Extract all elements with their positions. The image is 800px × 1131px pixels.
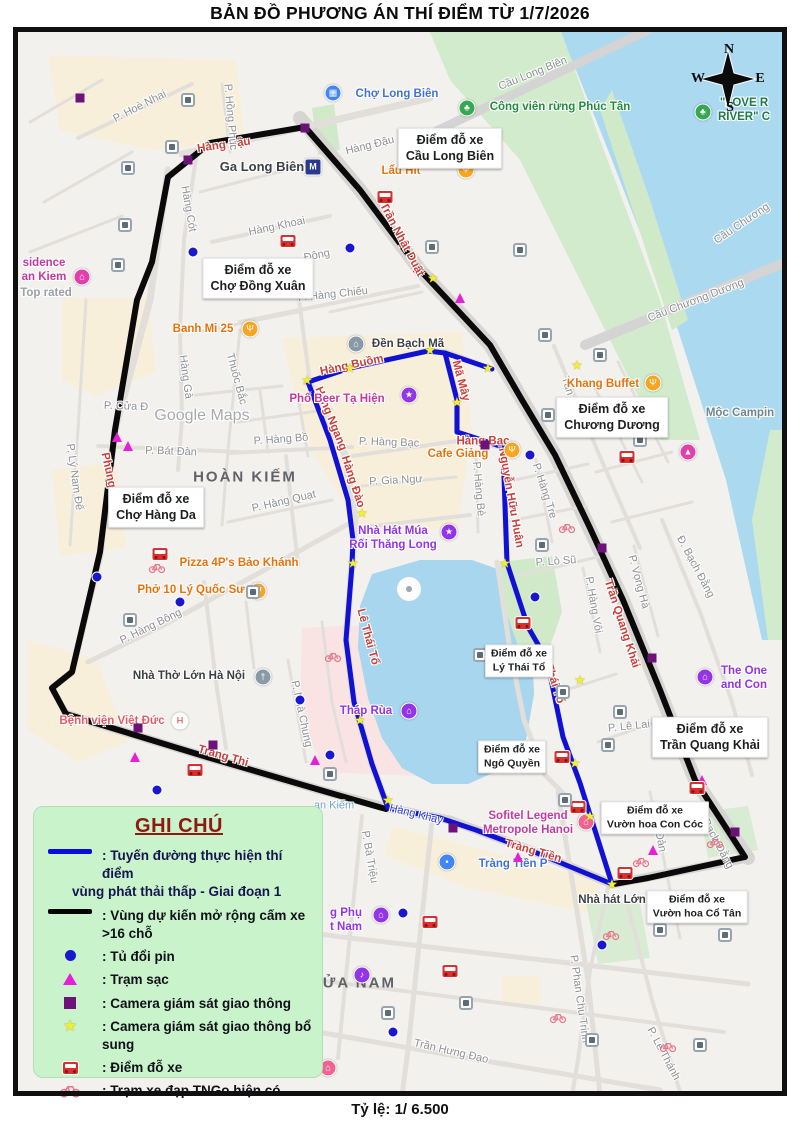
parking-label: Điểm đỗ xe Ngô Quyền	[478, 740, 546, 773]
traffic-camera-marker	[76, 94, 85, 103]
transit-stop-icon	[593, 348, 607, 362]
extra-camera-marker: ★	[482, 362, 494, 375]
legend-item: : Điểm đỗ xe	[46, 1059, 312, 1077]
poi-label: Nhà Hát Múa Rối Thăng Long	[349, 525, 437, 553]
poi-label: Banh Mi 25	[173, 323, 234, 337]
legend-item: : Tuyến đường thực hiện thí điểmvùng phá…	[46, 847, 312, 902]
extra-camera-marker: ★	[344, 362, 356, 375]
extra-camera-marker: ★	[574, 674, 586, 687]
extra-camera-marker: ★	[569, 757, 581, 770]
scale-note: Tỷ lệ: 1/ 6.500	[0, 1101, 800, 1118]
poi-icon: Ψ	[504, 442, 521, 459]
extra-camera-marker: ★	[382, 794, 394, 807]
legend-item: : Trạm xe đạp TNGo hiện có	[46, 1082, 312, 1100]
transit-stop-icon	[121, 161, 135, 175]
tngo-bike-marker	[559, 523, 576, 534]
legend-item: : Camera giám sát giao thông	[46, 995, 312, 1013]
traffic-camera-marker	[731, 828, 740, 837]
battery-swap-marker	[325, 750, 336, 761]
legend-symbol-bus-icon	[46, 1059, 94, 1075]
page-title: BẢN ĐỒ PHƯƠNG ÁN THÍ ĐIỂM TỪ 1/7/2026	[0, 3, 800, 24]
parking-point-marker	[619, 450, 636, 464]
legend-item-label: : Điểm đỗ xe	[102, 1059, 182, 1077]
extra-camera-marker: ★	[451, 396, 463, 409]
traffic-camera-marker	[648, 654, 657, 663]
tngo-bike-marker	[149, 563, 166, 574]
poi-label: Sofitel Legend Metropole Hanoi	[483, 810, 573, 838]
legend-symbol-bike-icon	[46, 1082, 94, 1098]
poi-icon: ★	[441, 524, 458, 541]
poi-label: Phở 10 Lý Quốc Sư	[137, 584, 244, 598]
poi-icon: Ψ	[645, 375, 662, 392]
parking-label: Điểm đỗ xe Chợ Hàng Da	[108, 487, 204, 528]
transit-stop-icon	[165, 140, 179, 154]
transit-stop-icon	[323, 767, 337, 781]
poi-icon: ⌂	[401, 703, 418, 720]
compass-east-label: E	[755, 71, 764, 87]
battery-swap-marker	[398, 908, 409, 919]
legend-item-label: : Tuyến đường thực hiện thí điểmvùng phá…	[102, 847, 312, 902]
transit-stop-icon	[123, 613, 137, 627]
poi-label: Pizza 4P's Bảo Khánh	[179, 557, 298, 571]
transit-stop-icon	[613, 705, 627, 719]
poi-icon: H	[172, 713, 189, 730]
transit-stop-icon	[111, 258, 125, 272]
parking-point-marker	[377, 190, 394, 204]
poi-icon: ⌂	[348, 336, 365, 353]
extra-camera-marker: ★	[356, 507, 368, 520]
extra-camera-marker: ★	[427, 272, 439, 285]
battery-swap-marker	[175, 597, 186, 608]
poi-label: Top rated	[20, 287, 72, 301]
battery-swap-marker	[525, 450, 536, 461]
parking-point-marker	[152, 547, 169, 561]
legend-symbol-square-icon	[46, 995, 94, 1009]
charging-station-marker	[310, 755, 320, 765]
legend-item: ★: Camera giám sát giao thông bổ sung	[46, 1018, 312, 1054]
street-label: P. Bát Đàn	[145, 446, 197, 459]
legend-item-label: : Trạm xe đạp TNGo hiện có	[102, 1082, 281, 1100]
district-label: HOÀN KIẾM	[193, 469, 297, 486]
transit-stop-icon	[513, 243, 527, 257]
parking-label: Điểm đỗ xe Trần Quang Khải	[652, 717, 768, 758]
legend-item-label-line2: vùng phát thải thấp - Giai đoạn 1	[72, 883, 312, 901]
traffic-camera-marker	[184, 156, 193, 165]
poi-label: Chợ Long Biên	[356, 88, 439, 102]
parking-label: Điểm đỗ xe Chợ Đồng Xuân	[203, 258, 314, 299]
poi-label: sidence an Kiem	[22, 257, 67, 285]
parking-point-marker	[689, 781, 706, 795]
transit-stop-icon	[538, 328, 552, 342]
charging-station-marker	[648, 845, 658, 855]
poi-label: Công viên rừng Phúc Tân	[490, 101, 631, 115]
parking-label: Điểm đỗ xe Cầu Long Biên	[398, 128, 502, 169]
parking-point-marker	[617, 866, 634, 880]
compass-north-label: N	[724, 42, 734, 58]
parking-point-marker	[570, 800, 587, 814]
parking-label: Điểm đỗ xe Chương Dương	[556, 397, 668, 438]
traffic-camera-marker	[134, 724, 143, 733]
poi-label: Bệnh viện Việt Đức	[59, 715, 164, 729]
poi-icon: ★	[401, 387, 418, 404]
parking-point-marker	[422, 915, 439, 929]
battery-swap-marker	[388, 1027, 399, 1038]
legend-item: : Trạm sạc	[46, 971, 312, 989]
legend-symbol-line-blue-icon	[46, 847, 94, 854]
legend-symbol-dot-icon	[46, 948, 94, 961]
tngo-bike-marker	[707, 838, 724, 849]
extra-camera-marker: ★	[499, 557, 511, 570]
transit-stop-icon	[653, 923, 667, 937]
transit-stop-icon	[585, 1033, 599, 1047]
poi-icon: Ψ	[242, 321, 259, 338]
poi-label: Cafe Giảng	[428, 448, 489, 462]
charging-station-marker	[112, 432, 122, 442]
parking-point-marker	[515, 616, 532, 630]
charging-station-marker	[123, 441, 133, 451]
extra-camera-marker: ★	[571, 359, 583, 372]
parking-point-marker	[442, 964, 459, 978]
traffic-camera-marker	[209, 741, 218, 750]
transit-stop-icon	[601, 738, 615, 752]
poi-icon: M	[305, 159, 322, 176]
transit-stop-icon	[535, 538, 549, 552]
transit-stop-icon	[558, 793, 572, 807]
legend-symbol-line-black-icon	[46, 907, 94, 914]
parking-point-marker	[554, 750, 571, 764]
poi-icon: ♣	[459, 100, 476, 117]
transit-stop-icon	[556, 685, 570, 699]
battery-swap-marker	[295, 695, 306, 706]
legend-item-label: : Tủ đổi pin	[102, 948, 175, 966]
poi-icon: ▲	[680, 444, 697, 461]
poi-label: Mộc Campin	[706, 407, 774, 421]
traffic-camera-marker	[598, 544, 607, 553]
poi-icon: ⌂	[74, 269, 91, 286]
poi-label: Nhà Thờ Lớn Hà Nội	[133, 670, 245, 684]
parking-point-marker	[280, 234, 297, 248]
transit-stop-icon	[693, 1038, 707, 1052]
transit-stop-icon	[459, 996, 473, 1010]
charging-station-marker	[455, 293, 465, 303]
street-label: Google Maps	[154, 408, 249, 424]
poi-label: Khang Buffet	[567, 378, 639, 392]
legend-title: GHI CHÚ	[46, 815, 312, 838]
compass-rose: N W E S	[690, 42, 768, 118]
transit-stop-icon	[541, 408, 555, 422]
transit-stop-icon	[118, 218, 132, 232]
traffic-camera-marker	[449, 824, 458, 833]
transit-stop-icon	[425, 240, 439, 254]
legend-item: : Vùng dự kiến mở rộng cấm xe >16 chỗ	[46, 907, 312, 943]
tngo-bike-marker	[660, 1042, 677, 1053]
legend-items: : Tuyến đường thực hiện thí điểmvùng phá…	[46, 847, 312, 1101]
compass-west-label: W	[691, 71, 705, 87]
battery-swap-marker	[92, 572, 103, 583]
poi-icon: ♪	[354, 967, 371, 984]
legend-item-label: : Camera giám sát giao thông bổ sung	[102, 1018, 312, 1054]
battery-swap-marker	[152, 785, 163, 796]
tngo-bike-marker	[633, 857, 650, 868]
charging-station-marker	[513, 852, 523, 862]
legend-symbol-star-icon: ★	[46, 1018, 94, 1034]
poi-icon: ⌂	[697, 669, 714, 686]
battery-swap-marker	[597, 940, 608, 951]
battery-swap-marker	[188, 247, 199, 258]
extra-camera-marker: ★	[347, 557, 359, 570]
legend-item-label: : Vùng dự kiến mở rộng cấm xe >16 chỗ	[102, 907, 312, 943]
tngo-bike-marker	[325, 652, 342, 663]
transit-stop-icon	[381, 1006, 395, 1020]
legend-item-label: : Camera giám sát giao thông	[102, 995, 291, 1013]
street-label: P. Cửa Đ	[104, 401, 149, 414]
extra-camera-marker: ★	[354, 714, 366, 727]
parking-label: Điểm đỗ xe Vườn hoa Con Cóc	[601, 801, 709, 834]
parking-label: Điểm đỗ xe Vườn hoa Cổ Tân	[647, 890, 748, 923]
charging-station-marker	[130, 752, 140, 762]
poi-label: Ga Long Biên	[220, 159, 305, 175]
parking-label: Điểm đỗ xe Lý Thái Tổ	[485, 644, 553, 677]
poi-label: Phố Beer Tạ Hiện	[289, 393, 384, 407]
poi-label: Nhà hát Lớn	[578, 894, 646, 908]
poi-icon: †	[255, 669, 272, 686]
legend-symbol-triangle-icon	[46, 971, 94, 985]
parking-point-marker	[187, 763, 204, 777]
tngo-bike-marker	[603, 930, 620, 941]
transit-stop-icon	[246, 585, 260, 599]
traffic-camera-marker	[301, 124, 310, 133]
transit-stop-icon	[181, 93, 195, 107]
poi-label: g Phụ t Nam	[330, 907, 362, 935]
legend-item: : Tủ đổi pin	[46, 948, 312, 966]
extra-camera-marker: ★	[301, 374, 313, 387]
legend-item-label: : Trạm sạc	[102, 971, 169, 989]
street-label: P. Hàng Bạc	[359, 436, 420, 449]
compass-south-label: S	[726, 100, 734, 116]
legend: GHI CHÚ : Tuyến đường thực hiện thí điểm…	[33, 806, 323, 1078]
transit-stop-icon	[718, 928, 732, 942]
poi-label: The One and Con	[721, 665, 767, 693]
poi-icon: ▦	[325, 85, 342, 102]
tngo-bike-marker	[550, 1013, 567, 1024]
poi-icon: ⌂	[373, 907, 390, 924]
battery-swap-marker	[345, 243, 356, 254]
map-document: BẢN ĐỒ PHƯƠNG ÁN THÍ ĐIỂM TỪ 1/7/2026 HO…	[0, 0, 800, 1131]
battery-swap-marker	[530, 592, 541, 603]
poi-icon: ▪	[439, 854, 456, 871]
traffic-camera-marker	[481, 441, 490, 450]
extra-camera-marker: ★	[424, 344, 436, 357]
